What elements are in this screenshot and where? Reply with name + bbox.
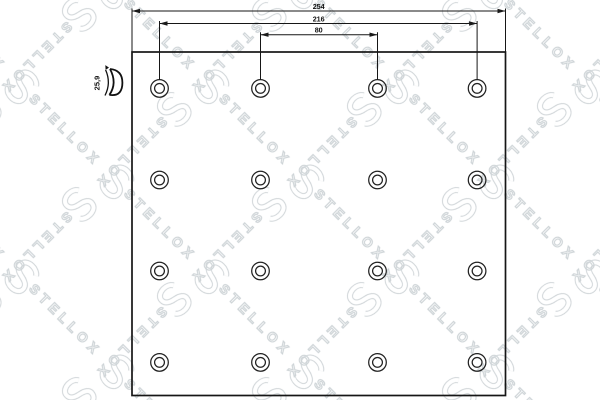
svg-text:80: 80 <box>315 26 323 35</box>
svg-text:254: 254 <box>313 2 325 11</box>
svg-text:216: 216 <box>313 15 325 24</box>
svg-text:25,9: 25,9 <box>93 76 102 91</box>
